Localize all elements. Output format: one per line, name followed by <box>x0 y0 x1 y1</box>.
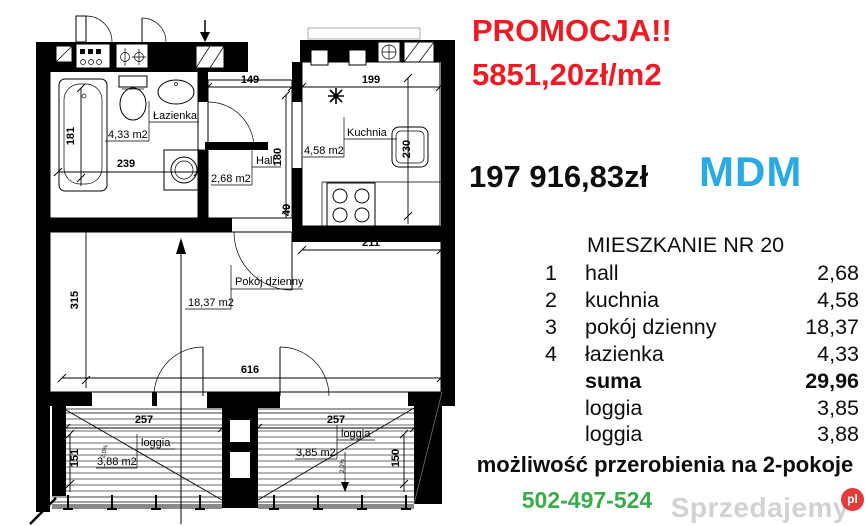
room-label-bathroom: Łazienka <box>153 110 198 122</box>
listing-image: 149 199 180 230 49 211 315 616 239 181 2… <box>0 0 868 526</box>
row-name: hall <box>571 260 805 287</box>
total-price: 197 916,83zł <box>469 159 648 195</box>
row-num: 4 <box>545 341 571 368</box>
room-label-kitchen: Kuchnia <box>347 127 388 139</box>
dim-hall-width: 149 <box>241 74 259 86</box>
row-name: suma <box>571 368 805 395</box>
toilet <box>119 76 147 120</box>
row-name: pokój dzienny <box>571 314 805 341</box>
dim-loggia-right-width: 257 <box>327 414 345 426</box>
dim-kitchen-depth: 230 <box>401 140 413 158</box>
row-area: 18,37 <box>805 314 859 341</box>
row-num: 1 <box>545 260 571 287</box>
dim-tub-length: 181 <box>65 127 77 145</box>
mdm-program-label: MDM <box>699 148 802 196</box>
room-area-loggia-right: 3,85 m2 <box>296 447 336 459</box>
dim-living-width: 616 <box>241 364 259 376</box>
sprzedajemy-watermark: Sprzedajemypl <box>671 488 864 524</box>
row-area: 4,33 <box>805 341 859 368</box>
row-name: loggia <box>571 421 805 448</box>
conversion-note: możliwość przerobienia na 2-pokoje <box>466 452 864 478</box>
stove <box>327 183 375 226</box>
dim-passage: 49 <box>281 204 293 216</box>
row-area: 4,58 <box>805 287 859 314</box>
row-num: 3 <box>545 314 571 341</box>
row-name: loggia <box>571 395 805 422</box>
entry-arrow-icon <box>200 20 210 42</box>
row-area: 3,85 <box>805 395 859 422</box>
dim-living-depth: 315 <box>69 291 81 309</box>
room-label-hall: Hall <box>256 155 275 167</box>
promo-price-per-m2: 5851,20zł/m2 <box>472 57 662 93</box>
row-name: łazienka <box>571 341 805 368</box>
row-area: 2,68 <box>805 260 859 287</box>
row-area: 29,96 <box>805 368 859 395</box>
area-table: MIESZKANIE NR 20 1 hall 2,68 2 kuchnia 4… <box>545 233 859 448</box>
dim-kitchen-width: 199 <box>362 74 380 86</box>
room-label-loggia-left: loggia <box>141 437 171 449</box>
room-label-loggia-right: loggia <box>341 428 371 440</box>
dim-loggia-right-depth: 150 <box>390 449 402 467</box>
dim-bath-width: 239 <box>117 158 135 170</box>
watermark-text: Sprzedajemy <box>671 492 849 523</box>
fixtures <box>59 76 441 226</box>
dim-kitchen-bottom: 211 <box>362 237 380 249</box>
row-num <box>545 395 571 422</box>
bathroom-sink <box>158 80 194 104</box>
slope-right: 2,0% <box>340 459 346 473</box>
dim-loggia-left-depth: 151 <box>69 449 81 467</box>
row-num: 2 <box>545 287 571 314</box>
room-label-living: Pokój dzienny <box>235 276 304 288</box>
floorplan: 149 199 180 230 49 211 315 616 239 181 2… <box>0 0 465 526</box>
watermark-pl-badge: pl <box>841 488 864 511</box>
area-table-rows: 1 hall 2,68 2 kuchnia 4,58 3 pokój dzien… <box>545 260 859 448</box>
promo-headline: PROMOCJA!! <box>472 13 672 49</box>
row-num <box>545 368 571 395</box>
room-area-loggia-left: 3,88 m2 <box>97 456 137 468</box>
row-num <box>545 421 571 448</box>
area-table-title: MIESZKANIE NR 20 <box>587 233 859 257</box>
room-area-hall: 2,68 m2 <box>211 173 251 185</box>
dim-loggia-left-width: 257 <box>135 414 153 426</box>
row-name: kuchnia <box>571 287 805 314</box>
room-area-living: 18,37 m2 <box>188 297 234 309</box>
room-area-kitchen: 4,58 m2 <box>304 145 344 157</box>
room-area-bathroom: 4,33 m2 <box>108 129 148 141</box>
light-symbol <box>328 88 344 104</box>
row-area: 3,88 <box>805 421 859 448</box>
